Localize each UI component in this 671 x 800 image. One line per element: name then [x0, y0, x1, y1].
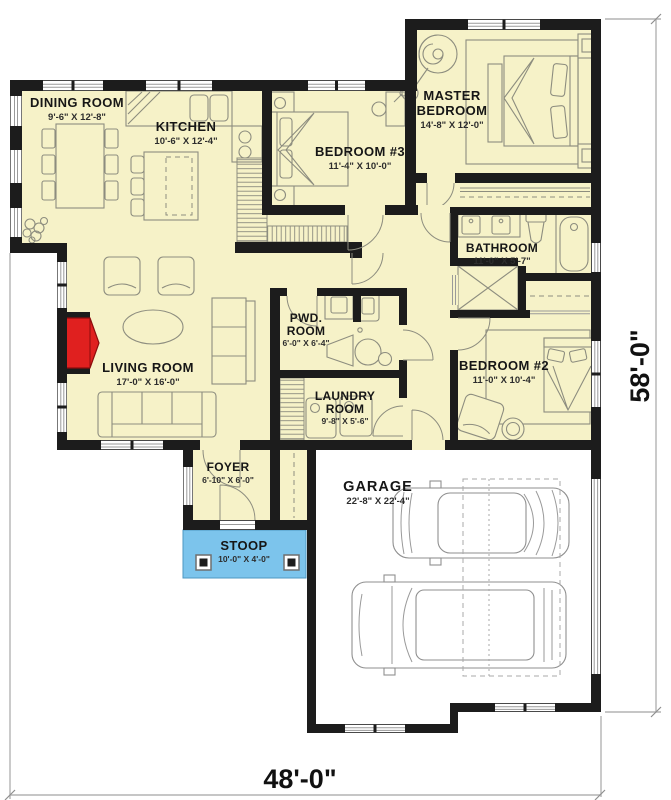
window: [592, 341, 600, 407]
pwd-room-dims: 6'-0" X 6'-4": [282, 338, 329, 348]
dining-table: [42, 124, 118, 208]
living-room-label: LIVING ROOM: [102, 360, 194, 375]
dining-room-dims: 9'-6" X 12'-8": [48, 112, 106, 123]
foyer-label: FOYER: [207, 460, 250, 474]
car-suv: [352, 575, 566, 675]
floor-plan: DINING ROOM 9'-6" X 12'-8" KITCHEN 10'-6…: [0, 0, 671, 800]
dining-room-label: DINING ROOM: [30, 95, 124, 110]
window: [146, 81, 212, 90]
garage-door: [591, 476, 601, 677]
bathroom-dims: 11'-0" X 5'-7": [473, 256, 530, 267]
kitchen-dims: 10'-6" X 12'-4": [154, 136, 217, 147]
garage-label: GARAGE: [343, 479, 413, 495]
bedroom3-dims: 11'-4" X 10'-0": [329, 161, 392, 172]
living-room-dims: 17'-0" X 16'-0": [116, 377, 179, 388]
window: [58, 383, 67, 432]
bedroom2-label: BEDROOM #2: [459, 358, 549, 373]
sofa: [98, 392, 216, 437]
laundry-room-label-1: LAUNDRY: [315, 389, 375, 403]
window: [495, 704, 555, 711]
bedroom3-label: BEDROOM #3: [315, 144, 405, 159]
window: [345, 725, 405, 732]
bathroom-vanity: [458, 213, 520, 237]
overall-width-dimension: 48'-0": [263, 764, 336, 794]
laundry-room-dims: 9'-8" X 5'-6": [321, 416, 368, 426]
kitchen-label: KITCHEN: [156, 119, 217, 134]
pwd-room-label-1: PWD.: [290, 311, 323, 325]
window: [11, 150, 22, 183]
media-unit: [212, 298, 255, 384]
overall-height-dimension: 58'-0": [625, 329, 655, 402]
bathtub: [556, 213, 592, 275]
stoop-dims: 10'-0" X 4'-0": [218, 554, 270, 564]
window: [184, 467, 193, 505]
laundry-cabinet-hatch: [280, 378, 304, 440]
window: [592, 243, 600, 272]
foyer-dims: 6'-10" X 6'-0": [202, 475, 254, 485]
window: [43, 81, 103, 90]
master-bedroom-label-1: MASTER: [423, 88, 480, 103]
window: [308, 81, 365, 90]
garage-dims: 22'-8" X 22'-4": [346, 496, 409, 507]
hall-closet-hatch: [267, 226, 347, 242]
kitchen-island: [131, 152, 198, 220]
coffee-table: [123, 310, 183, 344]
stoop-label: STOOP: [220, 538, 267, 553]
master-bedroom-dims: 14'-8" X 12'-0": [420, 120, 483, 131]
window: [11, 208, 22, 237]
floor-plan-drawing: DINING ROOM 9'-6" X 12'-8" KITCHEN 10'-6…: [0, 0, 671, 800]
master-bedroom-label-2: BEDROOM: [417, 103, 488, 118]
bedroom2-dims: 11'-0" X 10'-4": [473, 375, 536, 386]
kitchen-sink: [190, 95, 208, 121]
pwd-room-label-2: ROOM: [287, 324, 326, 338]
window: [468, 20, 540, 29]
bedroom2-side-table: [502, 418, 524, 440]
window: [101, 441, 163, 449]
door-linen: [450, 275, 458, 305]
car-sedan: [393, 481, 569, 565]
laundry-room-label-2: ROOM: [326, 402, 365, 416]
bathroom-label: BATHROOM: [466, 241, 538, 255]
window: [11, 96, 22, 126]
window: [58, 262, 67, 308]
